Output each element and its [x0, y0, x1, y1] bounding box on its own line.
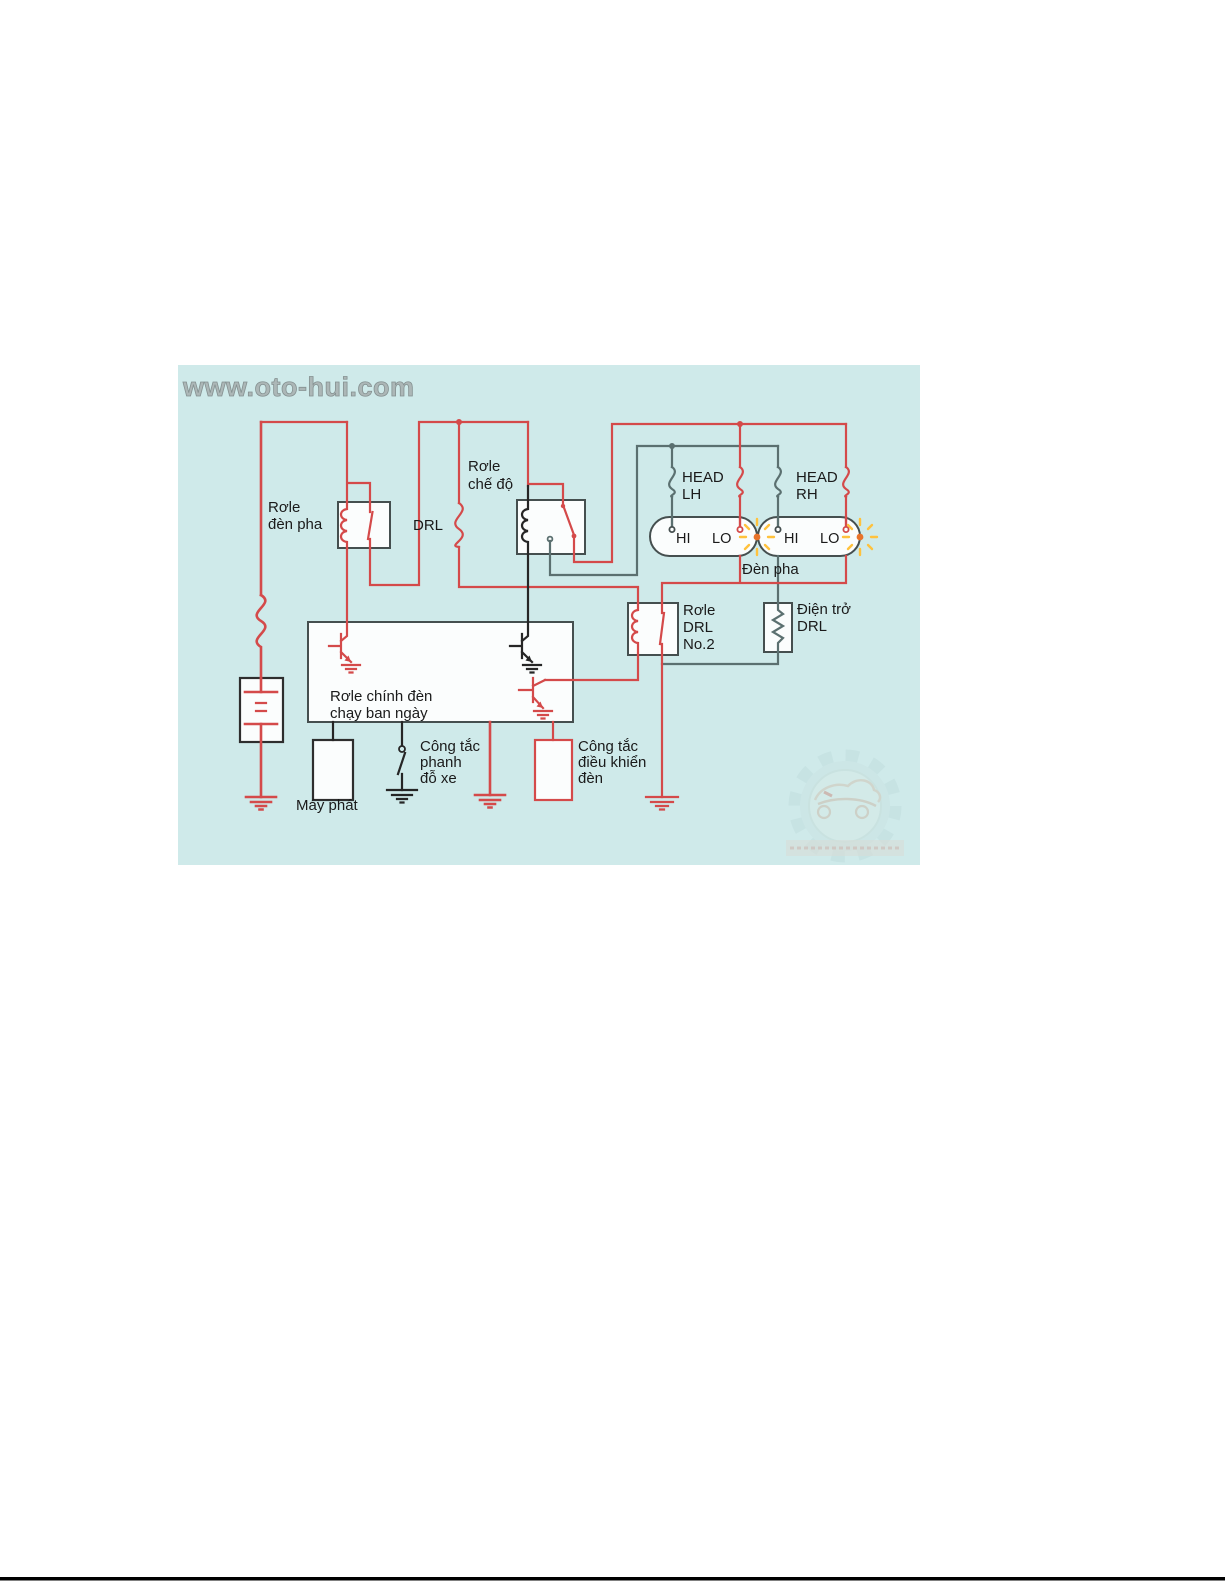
label-line: phanh	[420, 754, 462, 771]
label-line: đèn	[578, 770, 603, 787]
hi-label: HI	[784, 531, 799, 547]
label-line: Điện trở	[797, 601, 851, 618]
label-line: Công tắc	[578, 738, 639, 755]
label-line: LH	[682, 486, 701, 503]
site-watermark: www.oto-hui.com	[182, 372, 414, 402]
label-line: Công tắc	[420, 738, 481, 755]
label-line: đèn pha	[268, 516, 323, 533]
drl-fuse-label: DRL	[413, 517, 443, 534]
label-line: HEAD	[682, 469, 724, 486]
drl-no2-relay-label: Rơle DRL No.2	[683, 602, 715, 653]
lo-label: LO	[712, 531, 731, 547]
label-line: RH	[796, 486, 818, 503]
label-line: đỗ xe	[420, 770, 457, 787]
label-line: HEAD	[796, 469, 838, 486]
label-line: Rơle	[268, 499, 300, 516]
alternator-label: Máy phát	[296, 797, 359, 814]
label-line: chế độ	[468, 476, 513, 493]
contact-pivot-dot	[561, 504, 565, 508]
label-line: Rơle chính đèn	[330, 688, 432, 705]
glow-icon	[843, 519, 877, 555]
gear-hub	[809, 770, 881, 842]
label-line: điều khiển	[578, 754, 646, 771]
wiring-diagram-page: www.oto-hui.com Rơle đèn pha DRL Rơle ch…	[0, 0, 1225, 1585]
hi-label: HI	[676, 531, 691, 547]
label-line: chạy ban ngày	[330, 705, 428, 722]
label-line: Rơle	[683, 602, 715, 619]
glow-icon	[740, 519, 774, 555]
main-drl-relay-label: Rơle chính đèn chạy ban ngày	[330, 688, 432, 722]
label-line: No.2	[683, 636, 715, 653]
footer-rule	[0, 1577, 1225, 1581]
label-line: DRL	[797, 618, 827, 635]
lo-label: LO	[820, 531, 839, 547]
label-line: Rơle	[468, 458, 500, 475]
logo-banner	[786, 840, 904, 856]
label-line: DRL	[683, 619, 713, 636]
headlamps-label: Đèn pha	[742, 561, 799, 578]
light-control-switch-box	[535, 740, 572, 800]
alternator-box	[313, 740, 353, 800]
